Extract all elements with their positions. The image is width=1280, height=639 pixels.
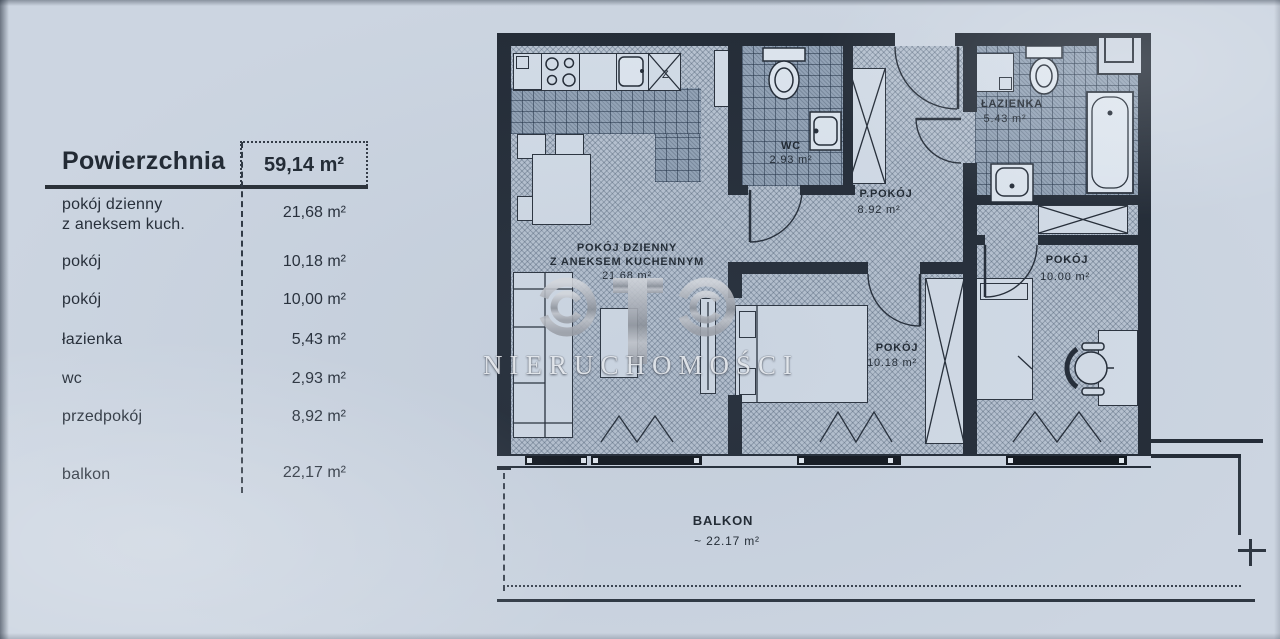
- table-row-value: 22,17 m²: [240, 464, 346, 482]
- area-table: Powierzchnia 59,14 m² pokój dzienny z an…: [0, 0, 420, 639]
- svg-text:Z: Z: [662, 69, 669, 81]
- bed-fold-line: [1018, 356, 1032, 369]
- table-row-label2: z aneksem kuch.: [62, 216, 185, 234]
- table-row-label: pokój: [62, 291, 101, 309]
- table-row-value: 2,93 m²: [240, 370, 346, 388]
- room-area-bedroom: 10.18 m²: [867, 357, 917, 369]
- table-row-value: 5,43 m²: [240, 331, 346, 349]
- room-label-hall: P.POKÓJ: [859, 188, 912, 200]
- room-area-bathroom: 5.43 m²: [984, 113, 1027, 125]
- room-area-living: 21.68 m²: [602, 270, 652, 282]
- table-header-label: Powierzchnia: [62, 147, 225, 176]
- toilet-icon: [1026, 46, 1062, 94]
- room-label-living2: Z ANEKSEM KUCHENNYM: [550, 256, 704, 268]
- table-row-value: 21,68 m²: [240, 204, 346, 222]
- window-frame-marks: [527, 458, 1124, 463]
- bathtub-icon: [1087, 92, 1133, 193]
- room-area-hall: 8.92 m²: [858, 204, 901, 216]
- room-label-room2: POKÓJ: [1046, 254, 1089, 266]
- apartment-floor-plan-photo: Powierzchnia 59,14 m² pokój dzienny z an…: [0, 0, 1280, 639]
- room-area-wc: 2.93 m²: [770, 154, 813, 166]
- table-header-value: 59,14 m²: [264, 154, 344, 177]
- table-divider: [241, 142, 243, 493]
- room-area-balcony: ~ 22.17 m²: [694, 534, 760, 548]
- sofa-lines: [514, 273, 572, 437]
- kitchen-sink-icon: [619, 57, 644, 86]
- table-row-value: 10,18 m²: [240, 253, 346, 271]
- table-row-value: 8,92 m²: [240, 408, 346, 426]
- toilet-icon: [763, 48, 805, 99]
- table-row-label: wc: [62, 370, 82, 388]
- room-label-balcony: BALKON: [693, 513, 753, 528]
- table-row-label: pokój: [62, 253, 101, 271]
- table-row-label: balkon: [62, 466, 110, 484]
- sink-icon: [810, 112, 841, 150]
- table-row-label: łazienka: [62, 331, 122, 349]
- room-area-room2: 10.00 m²: [1040, 271, 1090, 283]
- sink-icon: [991, 164, 1033, 202]
- table-header-value-box: 59,14 m²: [240, 141, 368, 189]
- desk-chair-icon: [1067, 343, 1114, 395]
- room-label-living: POKÓJ DZIENNY: [577, 242, 677, 254]
- dishwasher-icon: Z: [648, 53, 681, 91]
- window-opening-triangles: [601, 412, 1101, 442]
- table-row-label: pokój dzienny: [62, 196, 162, 214]
- room-label-bathroom: ŁAZIENKA: [981, 98, 1043, 110]
- table-rule: [45, 185, 368, 189]
- room-label-wc: WC: [781, 140, 801, 152]
- stove-burners-icon: [546, 58, 575, 86]
- table-row-label: przedpokój: [62, 408, 142, 426]
- table-row-value: 10,00 m²: [240, 291, 346, 309]
- room-label-bedroom: POKÓJ: [876, 342, 919, 354]
